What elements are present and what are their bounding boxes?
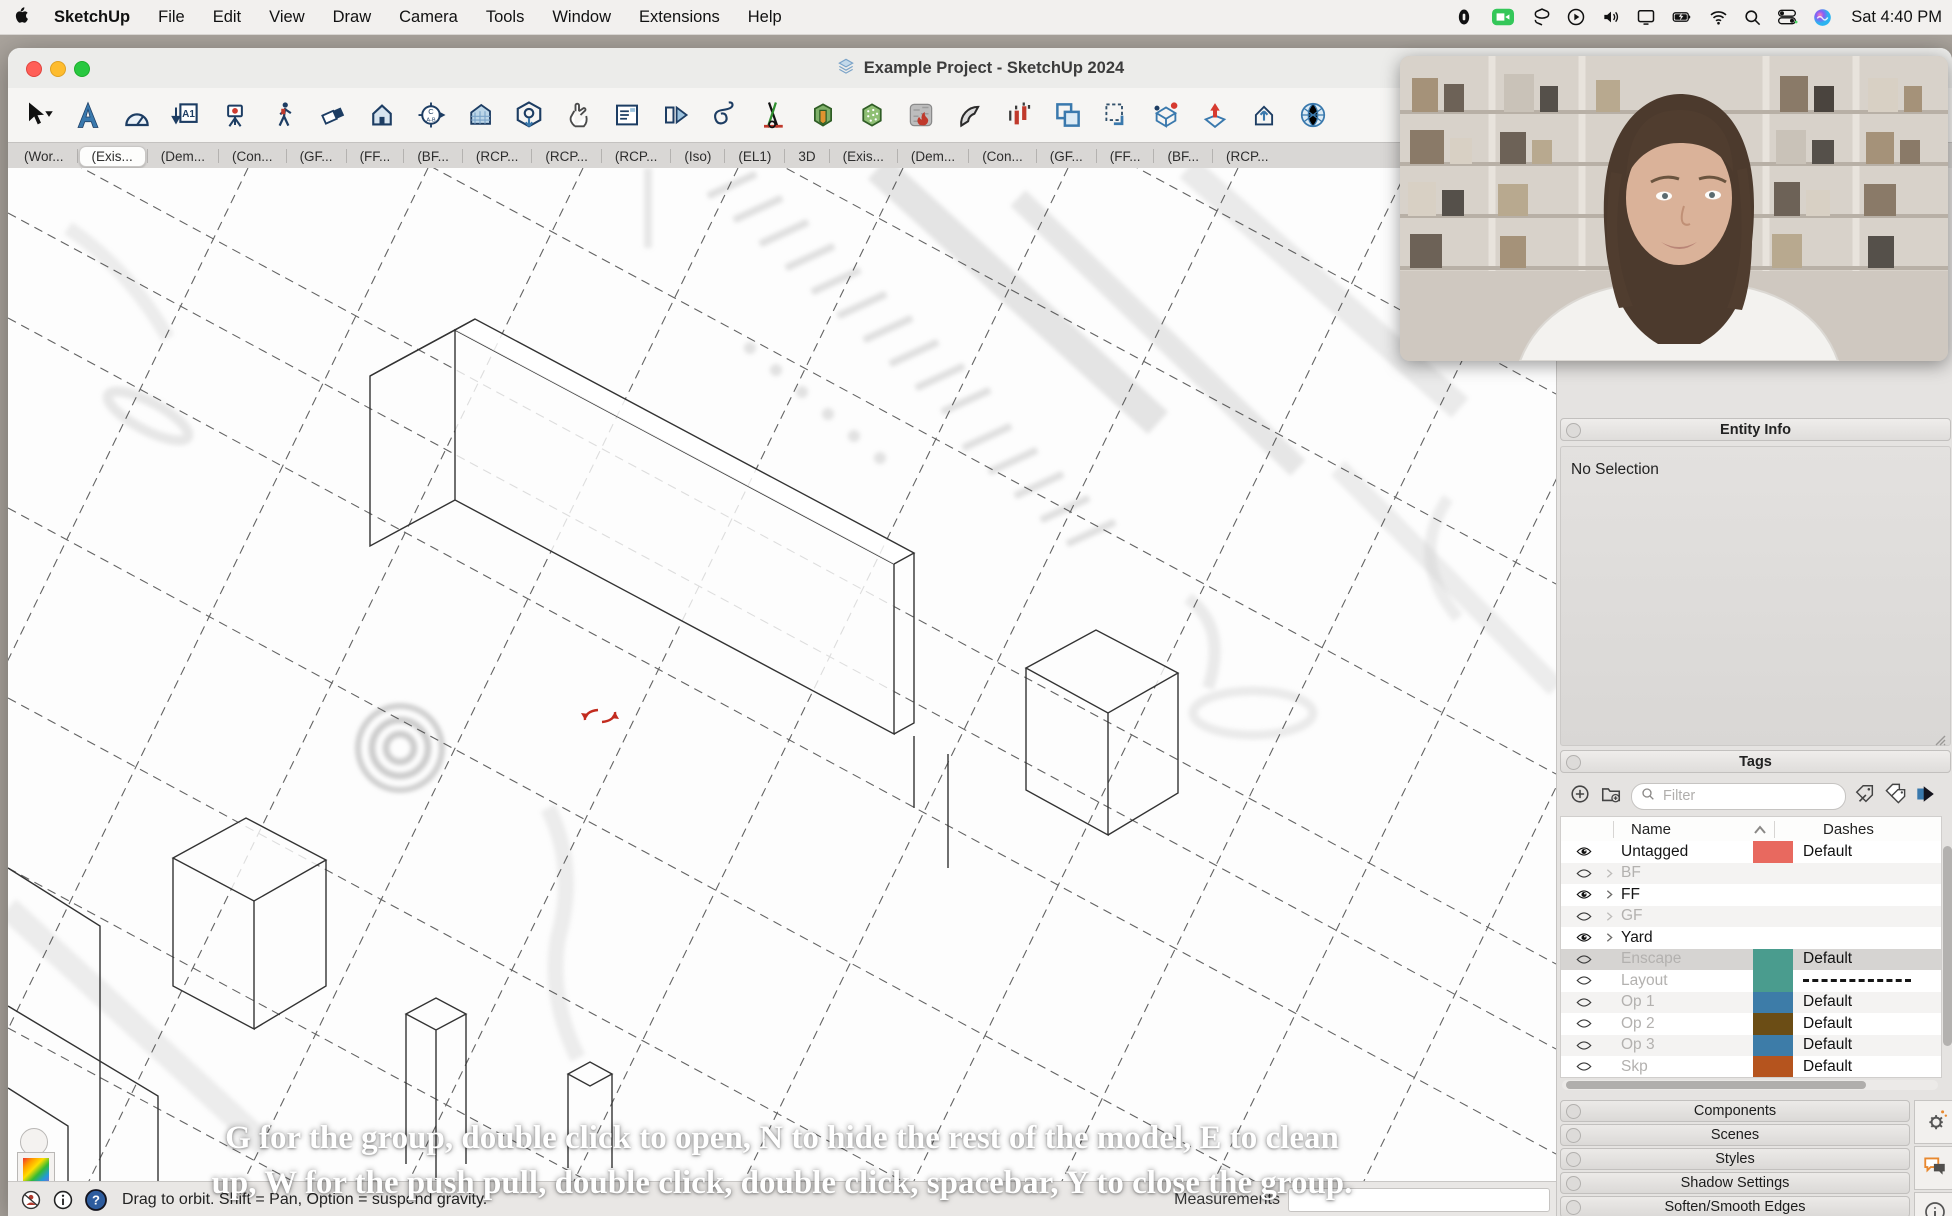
edit-tag-icon[interactable] — [1854, 783, 1876, 810]
panel-bar-label: Components — [1694, 1103, 1776, 1119]
column-name[interactable]: Name — [1631, 821, 1671, 838]
scene-tab[interactable]: (BF... — [405, 147, 461, 166]
battery-icon[interactable] — [1670, 7, 1694, 27]
visibility-eye-icon[interactable] — [1573, 865, 1595, 882]
tab-separator — [462, 149, 463, 163]
desktop: SketchUpFileEditViewDrawCameraToolsWindo… — [0, 0, 1952, 1216]
sort-ascending-icon — [1753, 825, 1767, 835]
scene-tab[interactable]: (BF... — [1155, 147, 1211, 166]
help-question-icon[interactable]: ? — [84, 1188, 108, 1212]
visibility-eye-icon[interactable] — [1573, 1058, 1595, 1075]
info-circle-button[interactable] — [1914, 1192, 1952, 1216]
tab-separator — [829, 149, 830, 163]
walk-tool-icon[interactable] — [267, 98, 301, 132]
document-tool-icon[interactable] — [610, 98, 644, 132]
menu-items: SketchUpFileEditViewDrawCameraToolsWindo… — [40, 8, 796, 27]
scene-tab[interactable]: (Iso) — [672, 147, 723, 166]
column-dashes[interactable]: Dashes — [1823, 821, 1874, 838]
menu-item-extensions[interactable]: Extensions — [625, 8, 734, 27]
tag-list-horizontal-scrollbar[interactable] — [1562, 1080, 1938, 1090]
tag-name: Layout — [1621, 972, 1753, 990]
tag-dashes-value[interactable] — [1803, 972, 1911, 990]
scene-tab[interactable]: (GF... — [1038, 147, 1095, 166]
visibility-eye-icon[interactable] — [1573, 908, 1595, 925]
visibility-eye-icon[interactable] — [1573, 886, 1595, 903]
visibility-eye-icon[interactable] — [1573, 929, 1595, 946]
add-tag-icon[interactable] — [1569, 783, 1591, 810]
compass-tool-icon[interactable]: CA-B — [414, 98, 448, 132]
tab-separator — [147, 149, 148, 163]
tag-row[interactable]: FF — [1561, 884, 1941, 906]
scene-tab[interactable]: (FF... — [348, 147, 403, 166]
webcam-overlay[interactable] — [1400, 56, 1948, 361]
chat-bubbles-icon — [1922, 1153, 1948, 1184]
panel-collapse-circle[interactable] — [1566, 1176, 1581, 1191]
tab-separator — [897, 149, 898, 163]
tags-stack-icon[interactable] — [1884, 782, 1907, 810]
scene-tab[interactable]: (RCP... — [533, 147, 600, 166]
visibility-eye-icon[interactable] — [1573, 972, 1595, 989]
a1-frame-tool-icon[interactable]: A1 — [169, 98, 203, 132]
panel-collapse-circle[interactable] — [1566, 1128, 1581, 1143]
svg-text:A1: A1 — [182, 109, 195, 120]
display-icon[interactable] — [1636, 7, 1656, 27]
tag-color-swatch[interactable] — [1753, 841, 1793, 863]
entity-info-title: Entity Info — [1720, 422, 1791, 438]
entity-info-header[interactable]: Entity Info — [1560, 418, 1951, 441]
tag-name: GF — [1621, 907, 1753, 925]
info-circle-icon — [1923, 1200, 1947, 1216]
tags-column-header[interactable]: Name Dashes — [1560, 816, 1942, 843]
tag-row[interactable]: Layout — [1561, 970, 1941, 992]
macos-menu-bar: SketchUpFileEditViewDrawCameraToolsWindo… — [0, 0, 1952, 35]
tag-name: Yard — [1621, 929, 1753, 947]
tag-color-swatch[interactable] — [1753, 1035, 1793, 1057]
model-viewport[interactable] — [8, 168, 1556, 1181]
green-dotted-box-tool-icon[interactable] — [855, 98, 889, 132]
tag-row[interactable]: BF — [1561, 863, 1941, 885]
panel-bar-label: Soften/Smooth Edges — [1664, 1199, 1805, 1215]
tag-color-swatch[interactable] — [1753, 992, 1793, 1014]
tag-list-vertical-scrollbar[interactable] — [1943, 844, 1952, 1072]
measurements-label: Measurements — [1174, 1191, 1280, 1209]
tag-list: Untagged Default BF FF GF Yard Enscape — [1560, 841, 1942, 1078]
control-center-icon[interactable] — [1776, 7, 1798, 27]
menu-item-draw[interactable]: Draw — [319, 8, 386, 27]
scene-tab[interactable]: (Con... — [220, 147, 285, 166]
svg-text:C: C — [428, 107, 434, 116]
tab-separator — [286, 149, 287, 163]
expand-caret-icon[interactable] — [1603, 867, 1619, 880]
scene-tab[interactable]: (Exis... — [79, 146, 146, 167]
tag-dashes-value[interactable]: Default — [1803, 950, 1852, 968]
scene-tab[interactable]: (RCP... — [464, 147, 531, 166]
tag-filter-field[interactable] — [1631, 783, 1846, 810]
chat-bubbles-button[interactable] — [1914, 1146, 1952, 1190]
select-tool-icon[interactable] — [22, 98, 56, 132]
copy-array-tool-icon[interactable] — [1051, 98, 1085, 132]
tab-separator — [968, 149, 969, 163]
model-drawing — [8, 168, 1556, 1181]
panel-collapse-circle[interactable] — [1566, 423, 1581, 438]
tab-separator — [784, 149, 785, 163]
visibility-eye-icon[interactable] — [1573, 843, 1595, 860]
menu-item-camera[interactable]: Camera — [385, 8, 472, 27]
tab-separator — [1096, 149, 1097, 163]
tag-name: Untagged — [1621, 843, 1753, 861]
menu-status-icons: Sat 4:40 PM — [1454, 0, 1942, 34]
geodesic-sphere-tool-icon[interactable] — [1296, 98, 1330, 132]
tag-row[interactable]: Skp Default — [1561, 1056, 1941, 1078]
tag-color-swatch[interactable] — [1753, 906, 1793, 928]
expand-caret-icon[interactable] — [1603, 910, 1619, 923]
tag-name: Op 1 — [1621, 993, 1753, 1011]
protractor-tool-icon[interactable] — [120, 98, 154, 132]
panel-collapse-circle[interactable] — [1566, 755, 1581, 770]
siri-icon[interactable] — [1812, 7, 1833, 28]
scene-tab[interactable]: (RCP... — [603, 147, 670, 166]
collapsed-panels: ComponentsScenesStylesShadow SettingsSof… — [1560, 1100, 1910, 1216]
panel-bar-styles[interactable]: Styles — [1560, 1148, 1910, 1170]
menu-item-edit[interactable]: Edit — [199, 8, 255, 27]
apple-logo-icon[interactable] — [0, 5, 40, 30]
tags-toolbar — [1560, 778, 1952, 814]
scene-tab[interactable]: (EL1) — [726, 147, 783, 166]
menu-item-window[interactable]: Window — [538, 8, 625, 27]
tag-color-swatch[interactable] — [1753, 863, 1793, 885]
grid-points-tool-icon[interactable] — [1149, 98, 1183, 132]
panel-bar-label: Styles — [1715, 1151, 1755, 1167]
house-arrow-tool-icon[interactable] — [1247, 98, 1281, 132]
scene-tab[interactable]: (Con... — [970, 147, 1035, 166]
dashed-rect-tool-icon[interactable] — [1100, 98, 1134, 132]
visibility-eye-icon[interactable] — [1573, 951, 1595, 968]
tag-row[interactable]: GF — [1561, 906, 1941, 928]
tag-color-swatch[interactable] — [1753, 970, 1793, 992]
tag-row[interactable]: Yard — [1561, 927, 1941, 949]
tab-separator — [601, 149, 602, 163]
tag-name: BF — [1621, 864, 1753, 882]
eraser-tool-icon[interactable] — [316, 98, 350, 132]
visibility-eye-icon[interactable] — [1573, 1015, 1595, 1032]
export-panel-tool-icon[interactable] — [659, 98, 693, 132]
entity-info-body: No Selection — [1560, 446, 1951, 746]
scene-tab[interactable]: (FF... — [1098, 147, 1153, 166]
tag-details-arrow-icon[interactable] — [1915, 783, 1937, 810]
tags-header[interactable]: Tags — [1560, 750, 1951, 773]
status-bar: ? Drag to orbit. Shift = Pan, Option = s… — [8, 1181, 1556, 1216]
no-selection-text: No Selection — [1561, 447, 1950, 479]
tag-color-swatch[interactable] — [1753, 884, 1793, 906]
panel-bar-components[interactable]: Components — [1560, 1100, 1910, 1122]
text-tool-icon[interactable] — [71, 98, 105, 132]
house-tool-icon[interactable] — [365, 98, 399, 132]
menu-item-help[interactable]: Help — [734, 8, 796, 27]
spotlight-search-icon[interactable] — [1743, 8, 1762, 27]
panel-bar-soften-smooth-edges[interactable]: Soften/Smooth Edges — [1560, 1196, 1910, 1216]
panel-collapse-circle[interactable] — [1566, 1200, 1581, 1215]
expand-caret-icon[interactable] — [1603, 888, 1619, 901]
scene-tab[interactable]: (Dem... — [899, 147, 967, 166]
rainbow-swatch-icon — [23, 1158, 49, 1181]
volume-icon[interactable] — [1600, 7, 1622, 27]
tag-dashes-value[interactable]: Default — [1803, 843, 1852, 861]
tag-dashes-value[interactable]: Default — [1803, 1058, 1852, 1076]
menu-item-file[interactable]: File — [144, 8, 199, 27]
camera-easel-tool-icon[interactable] — [218, 98, 252, 132]
green-box-tool-icon[interactable] — [806, 98, 840, 132]
tab-separator — [1036, 149, 1037, 163]
scene-tab[interactable]: (Dem... — [149, 147, 217, 166]
tag-name: Op 2 — [1621, 1015, 1753, 1033]
extension-gear-icon — [1922, 1107, 1948, 1138]
visibility-eye-icon[interactable] — [1573, 994, 1595, 1011]
tag-color-swatch[interactable] — [1753, 1056, 1793, 1078]
menu-item-view[interactable]: View — [255, 8, 318, 27]
recording-indicator-icon[interactable] — [1454, 7, 1474, 27]
panel-bar-scenes[interactable]: Scenes — [1560, 1124, 1910, 1146]
panel-bar-label: Shadow Settings — [1681, 1175, 1790, 1191]
gear-hexagon-tool-icon[interactable] — [512, 98, 546, 132]
search-icon — [1640, 786, 1656, 807]
tag-color-swatch[interactable] — [1753, 949, 1793, 971]
arc-sweep-tool-icon[interactable] — [953, 98, 987, 132]
tab-separator — [77, 149, 78, 163]
color-picker-button[interactable] — [17, 1152, 55, 1181]
status-hint-text: Drag to orbit. Shift = Pan, Option = sus… — [122, 1191, 487, 1209]
tag-row[interactable]: Enscape Default — [1561, 949, 1941, 971]
add-tag-folder-icon[interactable] — [1599, 783, 1623, 810]
visibility-eye-icon[interactable] — [1573, 1037, 1595, 1054]
info-outline-icon[interactable] — [52, 1189, 74, 1211]
scene-tab[interactable]: (Wor... — [12, 147, 76, 166]
tag-color-swatch[interactable] — [1753, 1013, 1793, 1035]
orbit-cursor-icon — [581, 710, 619, 722]
shortcuts-icon[interactable] — [1532, 7, 1552, 27]
tag-name: Skp — [1621, 1058, 1753, 1076]
scene-tab[interactable]: (Exis... — [831, 147, 896, 166]
textured-house-tool-icon[interactable] — [463, 98, 497, 132]
tag-row[interactable]: Untagged Default — [1561, 841, 1941, 863]
tab-separator — [346, 149, 347, 163]
menu-item-tools[interactable]: Tools — [472, 8, 539, 27]
svg-text:?: ? — [92, 1192, 100, 1207]
extension-gear-button[interactable] — [1914, 1100, 1952, 1144]
window-title: Example Project - SketchUp 2024 — [864, 59, 1124, 78]
status-icons: ? — [20, 1188, 108, 1212]
tag-row[interactable]: Op 2 Default — [1561, 1013, 1941, 1035]
side-icon-strip — [1914, 1100, 1952, 1216]
tag-color-swatch[interactable] — [1753, 927, 1793, 949]
lasso-tool-icon[interactable] — [708, 98, 742, 132]
expand-caret-icon[interactable] — [1603, 931, 1619, 944]
geolocation-person-icon[interactable] — [20, 1189, 42, 1211]
tag-name: Enscape — [1621, 950, 1753, 968]
menu-item-sketchup[interactable]: SketchUp — [40, 8, 144, 27]
measurements-input[interactable] — [1288, 1188, 1550, 1212]
stone-flame-tool-icon[interactable] — [904, 98, 938, 132]
tab-separator — [531, 149, 532, 163]
camera-active-icon[interactable] — [1488, 6, 1518, 28]
tag-dashes-value[interactable]: Default — [1803, 1036, 1852, 1054]
wifi-icon[interactable] — [1708, 7, 1729, 27]
tab-separator — [670, 149, 671, 163]
tag-dashes-value[interactable]: Default — [1803, 993, 1852, 1011]
tab-separator — [1212, 149, 1213, 163]
panel-bar-shadow-settings[interactable]: Shadow Settings — [1560, 1172, 1910, 1194]
axe-cut-tool-icon[interactable] — [757, 98, 791, 132]
tag-name: FF — [1621, 886, 1753, 904]
tab-separator — [218, 149, 219, 163]
tag-name: Op 3 — [1621, 1036, 1753, 1054]
red-arrow-pyramid-tool-icon[interactable] — [1198, 98, 1232, 132]
tag-row[interactable]: Op 1 Default — [1561, 992, 1941, 1014]
tab-separator — [724, 149, 725, 163]
tab-separator — [403, 149, 404, 163]
presenter-video — [1400, 56, 1948, 361]
red-posts-tool-icon[interactable] — [1002, 98, 1036, 132]
tab-separator — [1153, 149, 1154, 163]
menu-clock[interactable]: Sat 4:40 PM — [1851, 8, 1942, 27]
scene-tab[interactable]: (RCP... — [1214, 147, 1281, 166]
tags-title: Tags — [1739, 754, 1772, 770]
tag-filter-input[interactable] — [1661, 787, 1815, 805]
panel-resize-handle[interactable] — [1932, 733, 1946, 751]
play-circle-icon[interactable] — [1566, 7, 1586, 27]
scene-tab[interactable]: (GF... — [288, 147, 345, 166]
sketchup-logo-icon — [836, 56, 856, 81]
scene-tab[interactable]: 3D — [786, 147, 827, 166]
panel-bar-label: Scenes — [1711, 1127, 1759, 1143]
hand-pointer-tool-icon[interactable] — [561, 98, 595, 132]
panel-collapse-circle[interactable] — [1566, 1104, 1581, 1119]
panel-collapse-circle[interactable] — [1566, 1152, 1581, 1167]
tag-row[interactable]: Op 3 Default — [1561, 1035, 1941, 1057]
tag-dashes-value[interactable]: Default — [1803, 1015, 1852, 1033]
svg-text:A-B: A-B — [426, 117, 436, 123]
